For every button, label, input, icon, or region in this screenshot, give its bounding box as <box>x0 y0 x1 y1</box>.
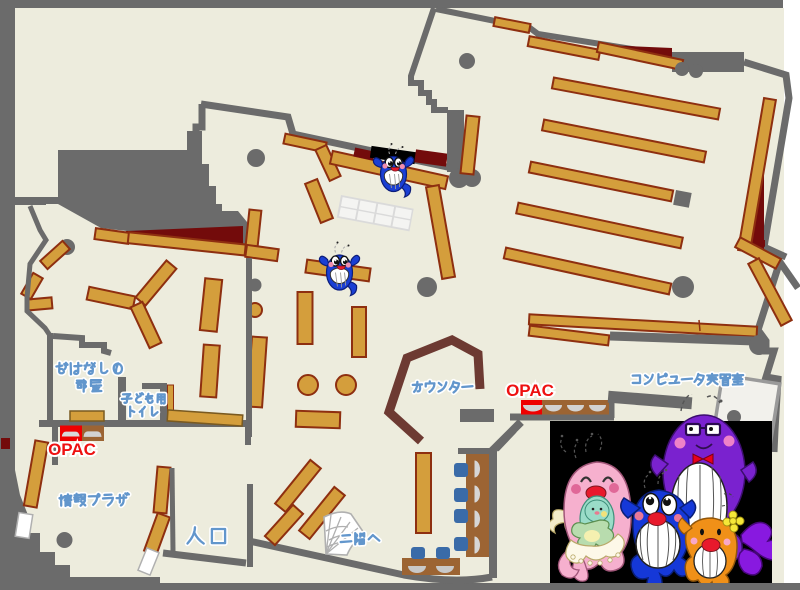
svg-text:OPAC: OPAC <box>506 381 554 400</box>
svg-text:OPAC: OPAC <box>48 440 96 459</box>
